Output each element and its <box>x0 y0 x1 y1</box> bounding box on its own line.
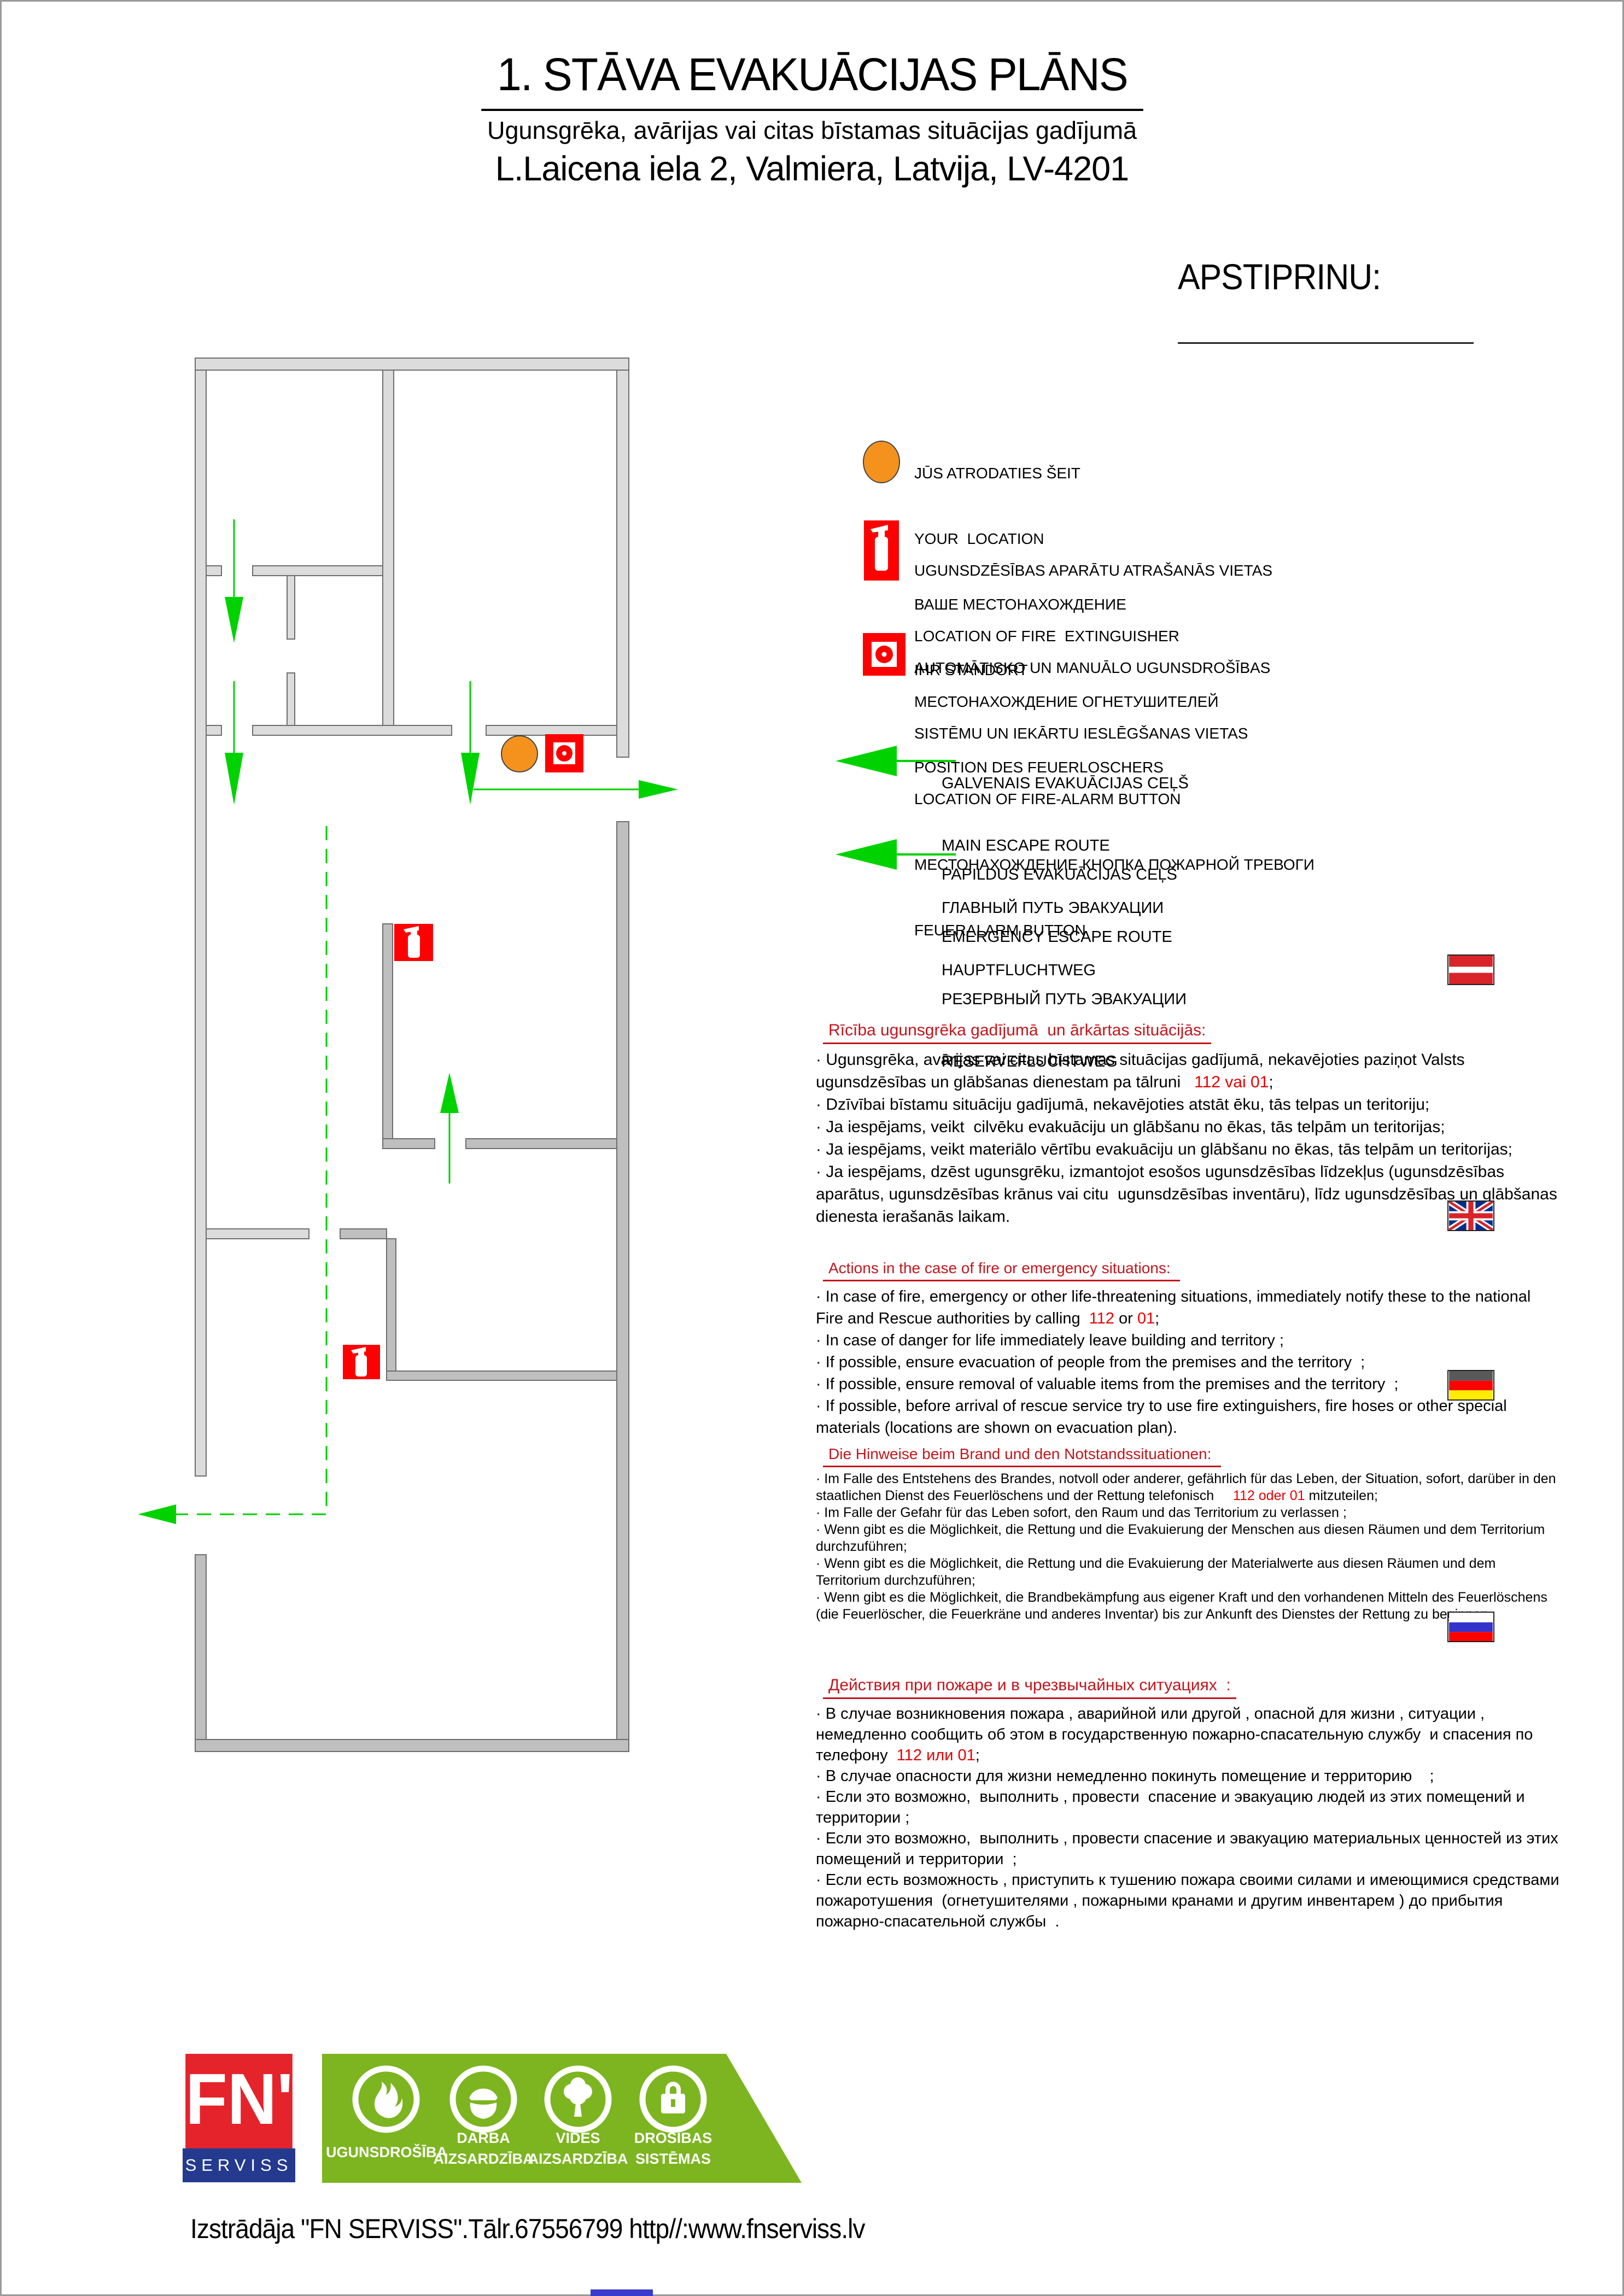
legend-line: GALVENAIS EVAKUĀCIJAS CEĻŠ <box>942 773 1189 794</box>
russia-flag-icon <box>1447 1612 1494 1642</box>
wall-outer-right-upper <box>617 370 629 757</box>
section-body-ru: · В случае возникновения пожара , аварий… <box>816 1703 1562 1932</box>
section-heading-lv: Rīcība ugunsgrēka gadījumā un ārkārtas s… <box>823 1021 1211 1044</box>
plan-markers <box>343 734 583 1379</box>
legend-line: РЕЗЕРВНЫЙ ПУТЬ ЭВАКУАЦИИ <box>942 989 1187 1010</box>
wall-block-bottom-right <box>486 725 617 735</box>
wall-outer-right-lower <box>617 822 629 1752</box>
wall-small-room <box>287 576 295 639</box>
wall-room1-bottom <box>253 566 383 576</box>
wall-block-bottom-left <box>253 725 452 735</box>
fire-extinguisher-icon <box>864 520 902 583</box>
wall-stub <box>206 725 221 735</box>
emergency-exit-arrow-head <box>138 1504 176 1524</box>
section-heading-en: Actions in the case of fire or emergency… <box>823 1260 1180 1281</box>
banner-label-4: DROŠĪBAS SISTĒMAS <box>613 2128 733 2169</box>
wall-outer-top <box>195 358 629 370</box>
wall-mid-horizontal-right <box>466 1139 617 1149</box>
legend-line: PAPILDUS EVAKUĀCIJAS CEĻŠ <box>942 864 1187 885</box>
germany-flag-icon <box>1447 1370 1494 1401</box>
building-address: L.Laicena iela 2, Valmiera, Latvija, LV-… <box>0 149 1624 189</box>
wall-low-left <box>206 1229 309 1239</box>
section-body-de: · Im Falle des Entstehens des Brandes, n… <box>816 1471 1562 1623</box>
bottom-blue-strip <box>591 2289 653 2296</box>
fn-serviss-label: SERVISS <box>183 2148 295 2182</box>
legend-line: JŪS ATRODATIES ŠEIT <box>914 462 1126 484</box>
section-heading-de: Die Hinweise beim Brand und den Notstand… <box>823 1445 1221 1467</box>
wall-low-long <box>387 1371 617 1380</box>
walls <box>195 358 629 1752</box>
instruction-paragraph: · Ja iespējams, veikt cilvēku evakuāciju… <box>816 1116 1562 1138</box>
approval-label: APSTIPRINU: <box>1178 256 1381 297</box>
instruction-paragraph: · In case of fire, emergency or other li… <box>816 1286 1562 1329</box>
developer-credit-line: Izstrādāja "FN SERVISS".Tālr.67556799 ht… <box>190 2213 865 2245</box>
instruction-paragraph: · В случае опасности для жизни немедленн… <box>816 1766 1562 1787</box>
banner-label-line: DROŠĪBAS <box>613 2128 733 2148</box>
fire-alarm-button-icon <box>863 633 907 677</box>
tree-foliage <box>569 2087 587 2105</box>
instruction-paragraph: · Im Falle des Entstehens des Brandes, n… <box>816 1471 1562 1504</box>
wall-small-room <box>287 673 295 725</box>
instruction-paragraph: · If possible, before arrival of rescue … <box>816 1395 1562 1439</box>
route-arrow-head-down <box>461 753 480 805</box>
wall-outer-bottom <box>195 1739 629 1752</box>
fire-extinguisher-marker <box>394 924 433 961</box>
wall-room-divider-top <box>383 370 394 725</box>
page-subtitle: Ugunsgrēka, avārijas vai citas bīstamas … <box>0 116 1624 145</box>
route-arrow-head-down <box>225 753 243 805</box>
instruction-paragraph: · Dzīvībai bīstamu situāciju gadījumā, n… <box>816 1093 1562 1116</box>
section-heading-ru: Действия при пожаре и в чрезвычайных сит… <box>823 1676 1236 1699</box>
page-title: 1. STĀVA EVAKUĀCIJAS PLĀNS <box>481 48 1143 111</box>
lock-keyhole <box>671 2099 675 2107</box>
floor-plan <box>126 344 716 1766</box>
signature-line <box>1178 342 1474 344</box>
wall-mid-vertical <box>383 924 393 1140</box>
instruction-paragraph: · Если есть возможность , приступить к т… <box>816 1870 1562 1932</box>
section-body-en: · In case of fire, emergency or other li… <box>816 1286 1562 1439</box>
instruction-paragraph: · Im Falle der Gefahr für das Leben sofo… <box>816 1504 1562 1521</box>
your-location-marker <box>501 736 538 772</box>
route-arrow-head-down <box>225 597 243 643</box>
wall-stub <box>206 566 221 576</box>
wall-low-vertical <box>387 1239 396 1371</box>
instruction-paragraph: · Wenn gibt es die Möglichkeit, die Rett… <box>816 1555 1562 1589</box>
instruction-paragraph: · В случае возникновения пожара , аварий… <box>816 1703 1562 1766</box>
fn-logo: FN' <box>185 2054 293 2148</box>
fire-extinguisher-marker <box>343 1345 380 1379</box>
route-arrow-head-up <box>440 1073 459 1113</box>
wall-outer-left-lower <box>195 1555 206 1752</box>
fire-alarm-marker <box>545 734 583 772</box>
wall-low-right <box>340 1229 387 1239</box>
legend-line: AUTOMĀTISKO UN MANUĀLO UGUNSDROŠĪBAS <box>914 657 1315 679</box>
instruction-paragraph: · Если это возможно, выполнить , провест… <box>816 1787 1562 1828</box>
your-location-icon <box>853 415 919 514</box>
instruction-paragraph: · Ja iespējams, veikt materiālo vērtību … <box>816 1138 1562 1161</box>
instruction-paragraph: · Если это возможно, выполнить , провест… <box>816 1828 1562 1870</box>
legend-line: UGUNSDZĒSĪBAS APARĀTU ATRAŠANĀS VIETAS <box>914 560 1272 582</box>
instruction-paragraph: · In case of danger for life immediately… <box>816 1329 1562 1351</box>
united-kingdom-flag-icon <box>1447 1200 1494 1231</box>
legend-line: EMERGENCY ESCAPE ROUTE <box>942 927 1187 947</box>
wall-outer-left-upper <box>195 370 206 1476</box>
title-block: 1. STĀVA EVAKUĀCIJAS PLĀNS Ugunsgrēka, a… <box>0 48 1624 189</box>
evacuation-plan-page: { "header": { "title": "1. STĀVA EVAKUĀC… <box>0 0 1624 2296</box>
instruction-paragraph: · Wenn gibt es die Möglichkeit, die Rett… <box>816 1521 1562 1555</box>
instruction-paragraph: · Ugunsgrēka, avārijas vai citas bīstama… <box>816 1049 1562 1093</box>
main-exit-arrow-head <box>639 780 678 799</box>
banner-label-line: SISTĒMAS <box>613 2148 733 2169</box>
wall-mid-horizontal-left <box>383 1139 435 1149</box>
latvia-flag-icon <box>1447 954 1494 985</box>
